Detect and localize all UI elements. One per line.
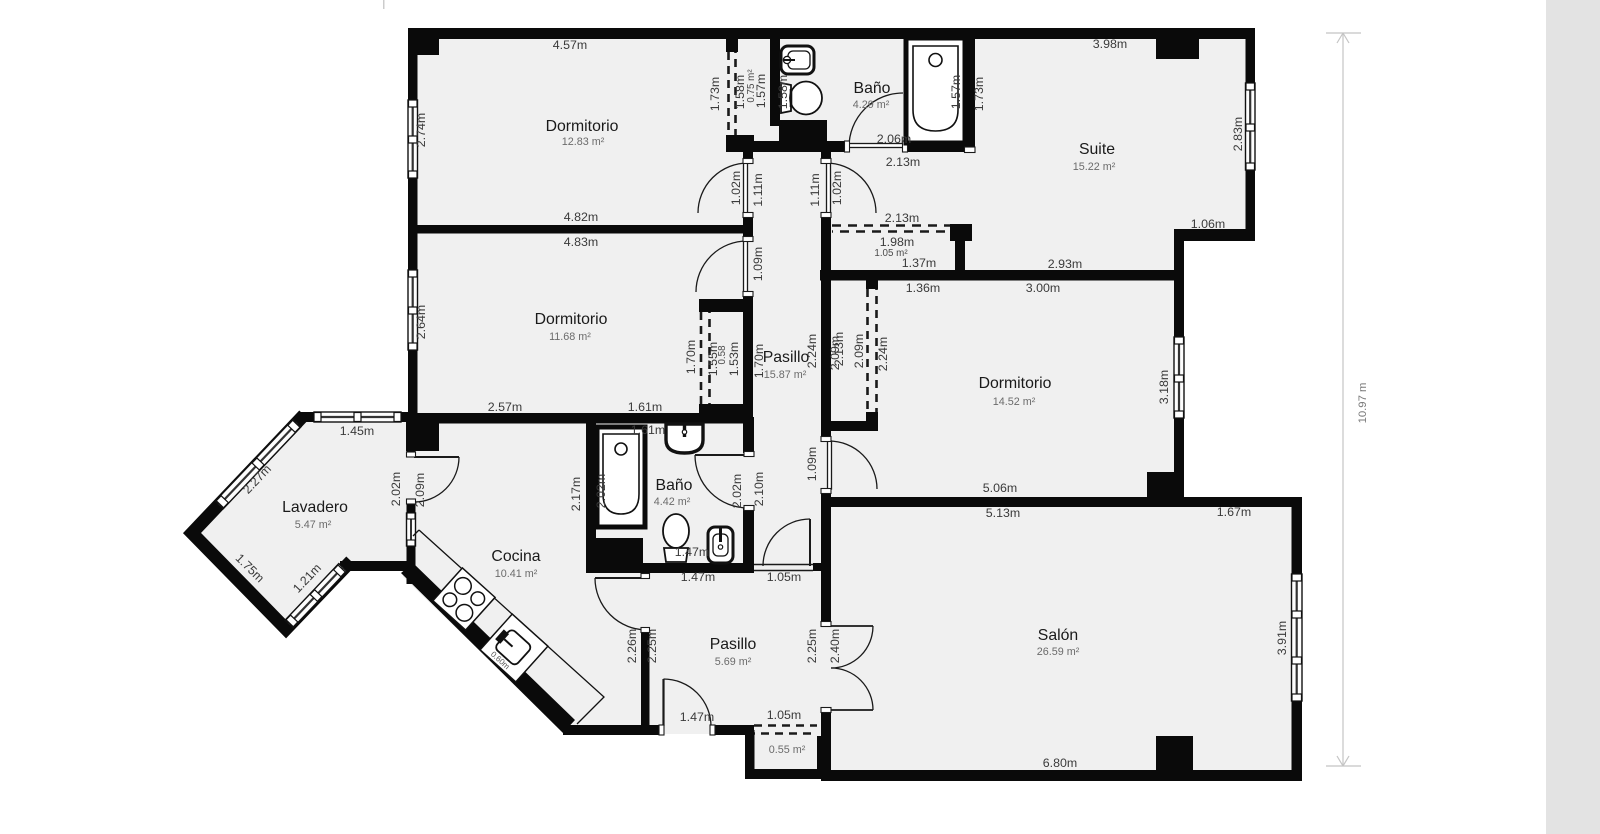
svg-text:2.09m: 2.09m [828,336,842,370]
svg-text:2.02m: 2.02m [594,474,608,508]
svg-text:1.53m: 1.53m [727,342,741,376]
svg-text:1.70m: 1.70m [684,340,698,374]
svg-text:1.58m: 1.58m [733,75,747,109]
svg-text:Pasillo: Pasillo [710,636,757,653]
svg-text:1.37m: 1.37m [902,256,936,270]
svg-text:1.98m: 1.98m [880,235,914,249]
svg-text:1.57m: 1.57m [949,75,963,109]
svg-text:Dormitorio: Dormitorio [535,311,608,328]
svg-text:4.82m: 4.82m [564,210,598,224]
svg-text:1.58m: 1.58m [776,75,790,109]
svg-text:6.80m: 6.80m [1043,756,1077,770]
svg-text:4.42 m²: 4.42 m² [654,496,691,508]
svg-text:1.11m: 1.11m [751,173,765,207]
svg-text:2.26m: 2.26m [625,629,639,663]
svg-text:5.13m: 5.13m [986,506,1020,520]
svg-text:1.57m: 1.57m [754,74,768,108]
svg-text:Suite: Suite [1079,141,1115,158]
svg-text:14.52 m²: 14.52 m² [993,396,1036,408]
svg-text:1.70m: 1.70m [752,344,766,378]
svg-text:2.24m: 2.24m [876,337,890,371]
svg-text:1.05m: 1.05m [767,708,801,722]
svg-text:1.47m: 1.47m [680,710,714,724]
svg-text:2.06m: 2.06m [877,132,911,146]
svg-text:12.83 m²: 12.83 m² [562,136,605,148]
svg-text:2.83m: 2.83m [1231,117,1245,151]
svg-text:1.47m: 1.47m [681,570,715,584]
svg-text:26.59 m²: 26.59 m² [1037,646,1080,658]
svg-text:2.02m: 2.02m [389,472,403,506]
svg-text:1.05m: 1.05m [767,570,801,584]
svg-text:3.98m: 3.98m [1093,37,1127,51]
svg-text:5.47 m²: 5.47 m² [295,519,332,531]
svg-text:1.73m: 1.73m [972,77,986,111]
svg-text:2.10m: 2.10m [752,472,766,506]
svg-text:Lavadero: Lavadero [282,499,348,516]
svg-text:3.00m: 3.00m [1026,281,1060,295]
svg-text:2.57m: 2.57m [488,400,522,414]
svg-text:Salón: Salón [1038,627,1078,644]
svg-text:2.17m: 2.17m [569,477,583,511]
svg-text:Dormitorio: Dormitorio [979,375,1052,392]
svg-text:2.09m: 2.09m [413,473,427,507]
svg-text:3.91m: 3.91m [1275,621,1289,655]
svg-text:10.41 m²: 10.41 m² [495,568,538,580]
svg-text:1.45m: 1.45m [340,424,374,438]
svg-text:1.11m: 1.11m [808,173,822,207]
svg-text:Baño: Baño [854,80,891,97]
svg-text:Baño: Baño [656,477,693,494]
svg-text:Pasillo: Pasillo [763,349,810,366]
svg-text:2.09m: 2.09m [852,334,866,368]
svg-text:Cocina: Cocina [491,548,540,565]
svg-text:1.06m: 1.06m [1191,217,1225,231]
svg-text:4.83m: 4.83m [564,235,598,249]
svg-text:2.93m: 2.93m [1048,257,1082,271]
svg-text:15.22 m²: 15.22 m² [1073,161,1116,173]
svg-text:5.69 m²: 5.69 m² [715,656,752,668]
svg-text:1.02m: 1.02m [729,171,743,205]
svg-text:2.13m: 2.13m [886,155,920,169]
svg-text:1.09m: 1.09m [805,447,819,481]
svg-text:3.18m: 3.18m [1157,370,1171,404]
svg-text:1.02m: 1.02m [830,171,844,205]
svg-text:1.36m: 1.36m [906,281,940,295]
svg-text:2.25m: 2.25m [645,629,659,663]
svg-text:2.24m: 2.24m [805,334,819,368]
svg-text:2.02m: 2.02m [730,474,744,508]
svg-text:1.67m: 1.67m [1217,505,1251,519]
svg-text:1.61m: 1.61m [628,400,662,414]
svg-text:2.13m: 2.13m [885,211,919,225]
svg-text:4.29 m²: 4.29 m² [853,99,890,111]
svg-text:1.61m: 1.61m [631,423,665,437]
svg-text:1.73m: 1.73m [708,77,722,111]
svg-text:1.09m: 1.09m [751,247,765,281]
svg-text:4.57m: 4.57m [553,38,587,52]
svg-text:0.55 m²: 0.55 m² [769,744,806,756]
svg-text:2.64m: 2.64m [414,305,428,339]
svg-text:1.47m: 1.47m [675,545,709,559]
svg-text:10.97 m: 10.97 m [1357,383,1369,424]
svg-text:2.25m: 2.25m [805,629,819,663]
svg-text:11.68 m²: 11.68 m² [549,331,591,343]
svg-text:2.74m: 2.74m [414,113,428,147]
svg-text:15.87 m²: 15.87 m² [764,369,807,381]
svg-text:2.40m: 2.40m [828,629,842,663]
svg-text:Dormitorio: Dormitorio [546,118,619,135]
svg-text:5.06m: 5.06m [983,481,1017,495]
